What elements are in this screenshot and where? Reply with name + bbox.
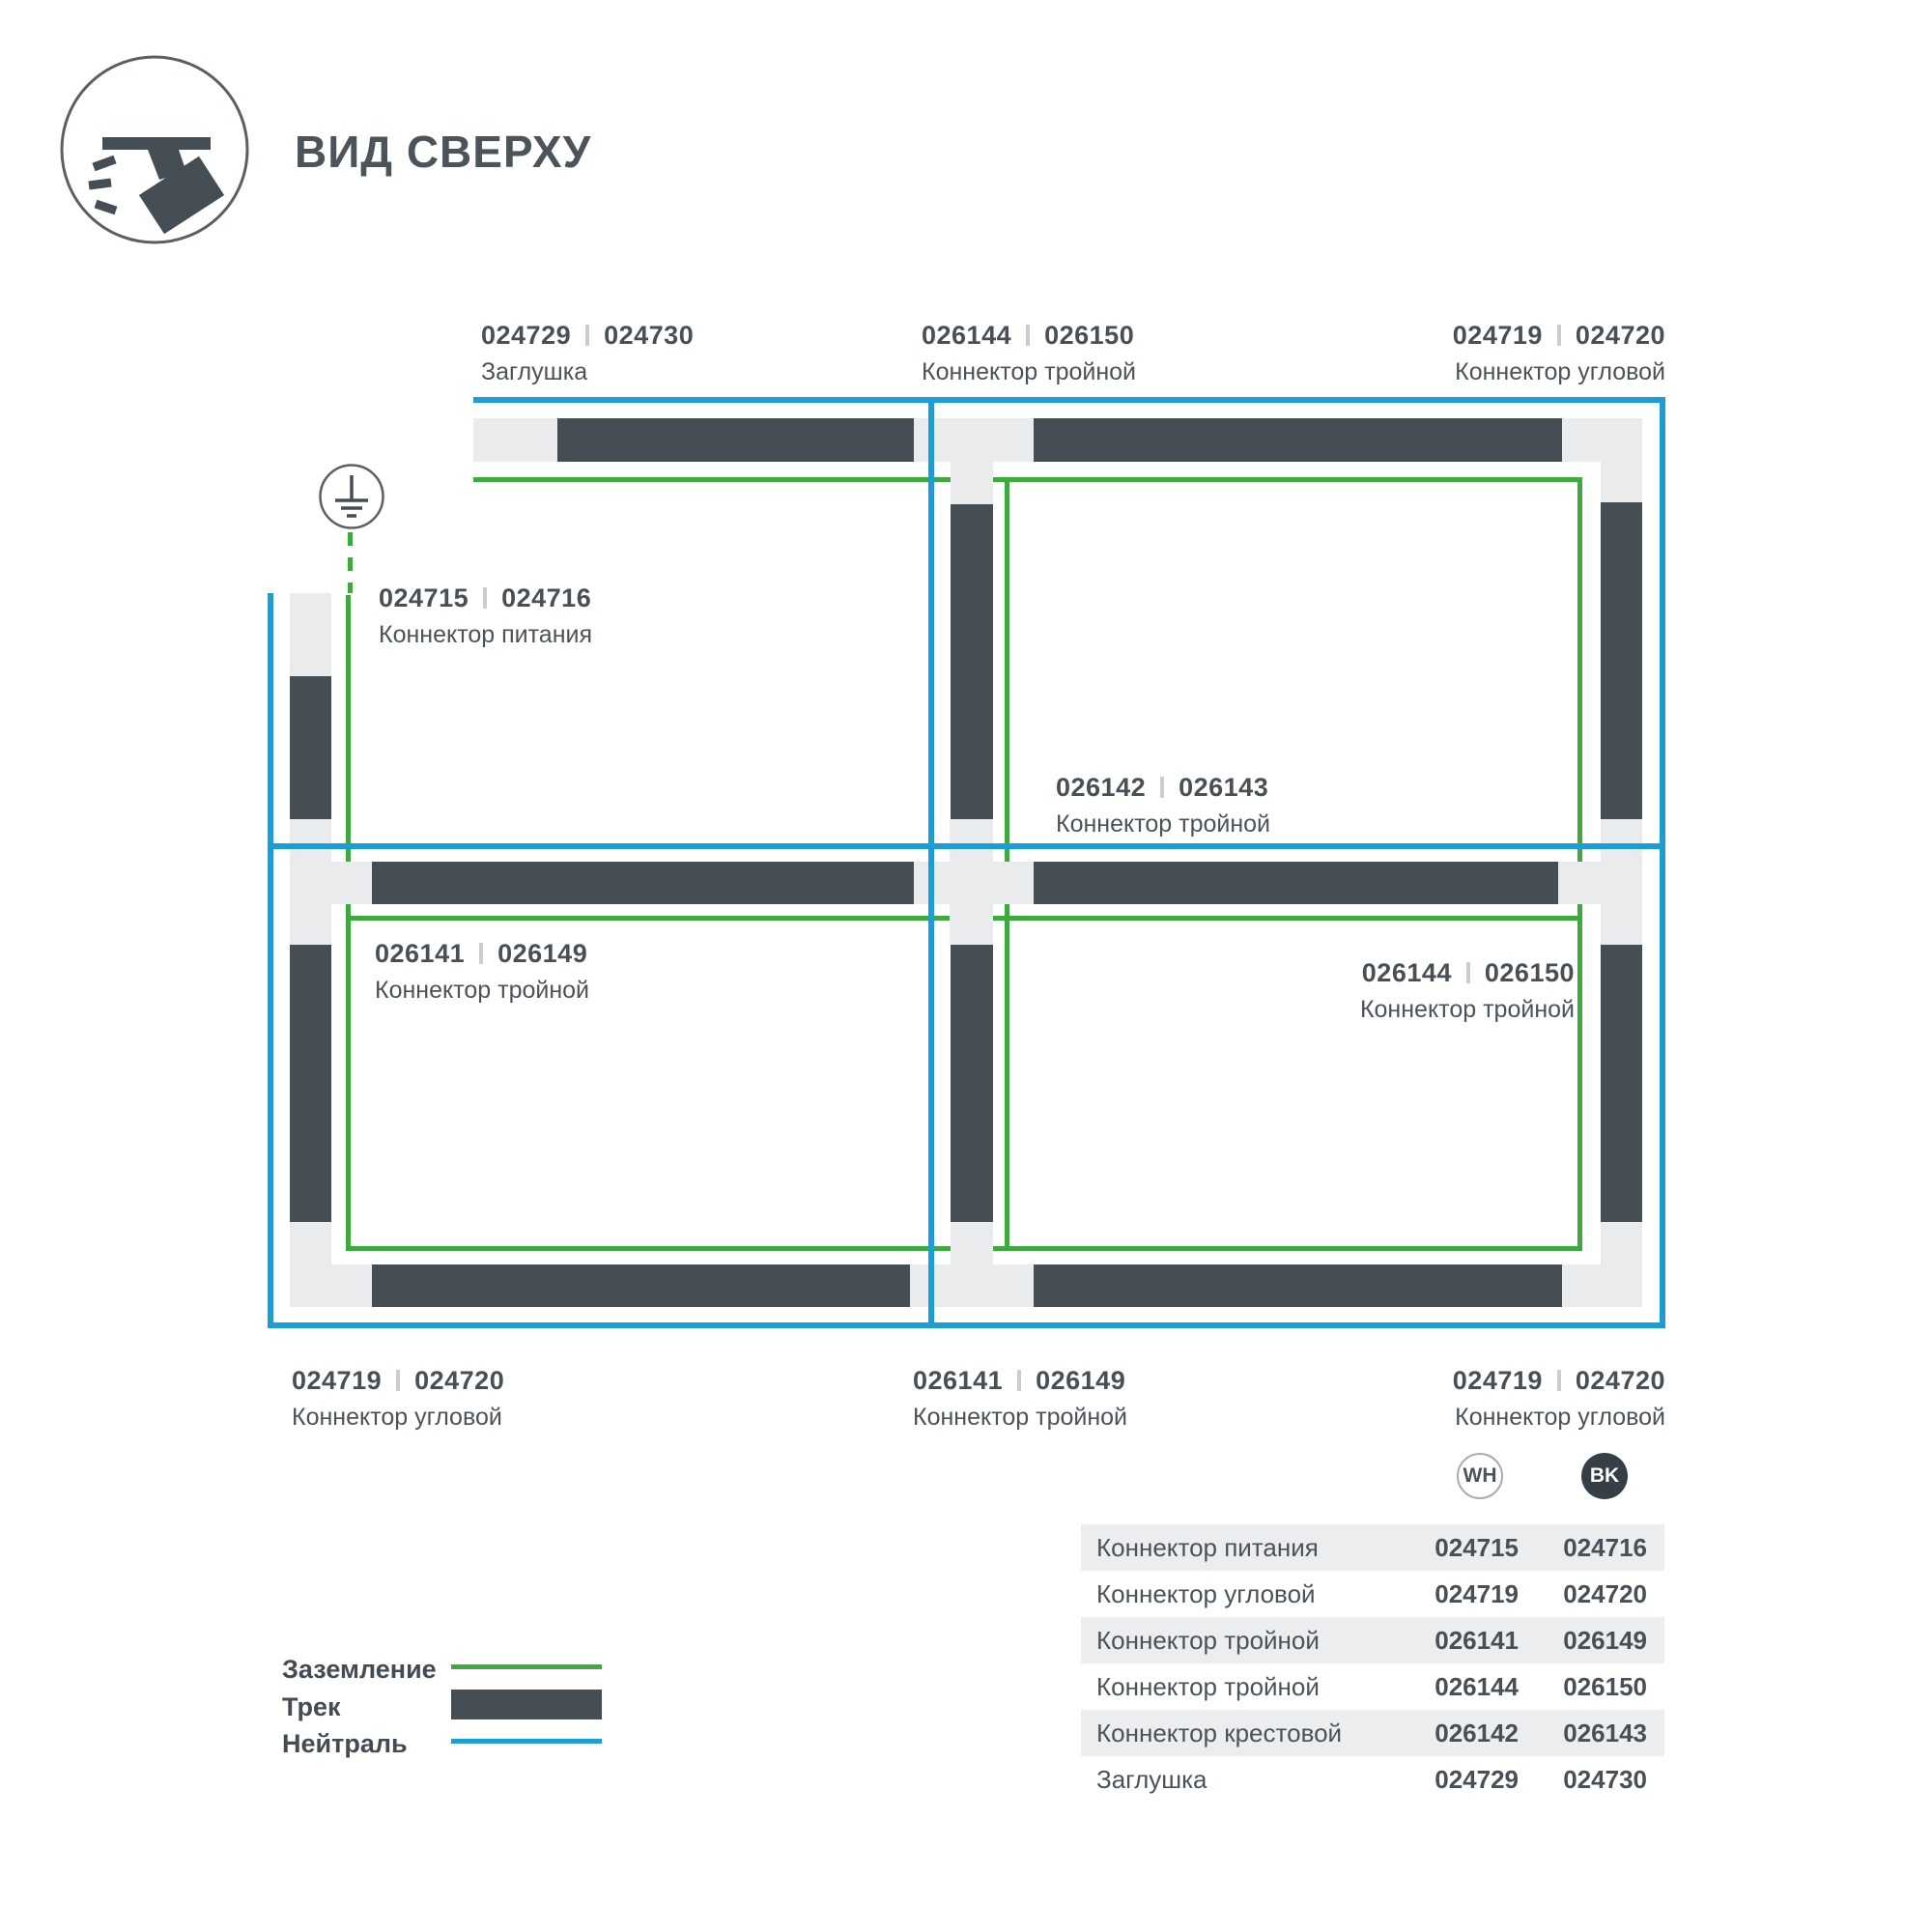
part-number-bk: 026150 — [1485, 958, 1575, 987]
part-number-bk: 024720 — [1576, 1366, 1665, 1395]
neutral-line-swatch — [451, 1739, 602, 1744]
part-numbers: 024719024720 — [1453, 321, 1665, 351]
part-number-wh: 024719 — [1453, 321, 1543, 350]
connector-segment — [1601, 462, 1642, 502]
part-label: 024719024720Коннектор угловой — [1453, 321, 1665, 386]
track-bar-swatch — [451, 1690, 602, 1719]
track-segment — [290, 676, 331, 819]
part-number-bk: 024716 — [501, 583, 591, 612]
part-number-bk: 026149 — [1036, 1366, 1125, 1395]
table-cell-name: Коннектор крестовой — [1096, 1710, 1342, 1756]
connector-segment — [1601, 819, 1642, 945]
table-row: Коннектор угловой024719024720 — [1081, 1571, 1664, 1617]
table-cell-wh: 024715 — [1435, 1524, 1519, 1571]
table-cell-bk: 026150 — [1563, 1663, 1647, 1710]
top-view-diagram-page: ВИД СВЕРХУ 024729024730Заглушка026144026… — [0, 0, 1932, 1932]
legend-label: Нейтраль — [282, 1729, 408, 1759]
part-number-bk: 024730 — [604, 321, 694, 350]
separator — [483, 587, 487, 609]
part-numbers: 026144026150 — [922, 321, 1136, 351]
neutral-wire — [473, 397, 1665, 403]
table-cell-bk: 024730 — [1563, 1756, 1647, 1803]
track-segment — [1601, 502, 1642, 819]
part-numbers: 026141026149 — [375, 939, 589, 969]
table-cell-wh: 026144 — [1435, 1663, 1519, 1710]
table-cell-bk: 026149 — [1563, 1617, 1647, 1663]
part-numbers: 026144026150 — [1360, 958, 1575, 988]
connector-segment — [951, 462, 993, 505]
neutral-wire — [268, 593, 273, 1328]
part-label: 026144026150Коннектор тройной — [1360, 958, 1575, 1024]
connector-segment — [1562, 1264, 1642, 1307]
part-number-bk: 024720 — [1576, 321, 1665, 350]
track-light-icon — [59, 54, 250, 245]
table-row: Коннектор тройной026141026149 — [1081, 1617, 1664, 1663]
part-numbers: 024715024716 — [379, 583, 592, 613]
part-numbers: 026142026143 — [1056, 773, 1270, 803]
color-badge-wh: WH — [1457, 1453, 1503, 1499]
part-name: Коннектор тройной — [375, 977, 589, 1005]
page-title: ВИД СВЕРХУ — [295, 126, 591, 178]
connector-segment — [290, 593, 331, 676]
ground-wire — [348, 532, 353, 593]
track-segment — [951, 945, 993, 1222]
part-name: Коннектор тройной — [1360, 996, 1575, 1024]
track-segment — [372, 862, 914, 904]
separator — [479, 943, 483, 964]
connector-segment — [290, 819, 331, 945]
table-cell-bk: 024716 — [1563, 1524, 1647, 1571]
table-row: Заглушка024729024730 — [1081, 1756, 1664, 1803]
neutral-wire — [1660, 397, 1665, 1328]
part-name: Коннектор тройной — [922, 358, 1136, 386]
part-label: 024719024720Коннектор угловой — [1453, 1366, 1665, 1432]
part-name: Коннектор тройной — [913, 1404, 1127, 1432]
separator — [585, 325, 589, 346]
track-segment — [1601, 945, 1642, 1222]
part-numbers: 024719024720 — [292, 1366, 504, 1396]
part-label: 024719024720Коннектор угловой — [292, 1366, 504, 1432]
part-number-bk: 026150 — [1044, 321, 1134, 350]
track-segment — [951, 504, 993, 819]
part-name: Заглушка — [481, 358, 694, 386]
track-segment — [557, 418, 914, 462]
table-cell-name: Коннектор угловой — [1096, 1571, 1316, 1617]
separator — [1160, 777, 1164, 798]
color-badge-bk: BK — [1581, 1453, 1628, 1499]
part-number-wh: 026141 — [913, 1366, 1003, 1395]
part-label: 026144026150Коннектор тройной — [922, 321, 1136, 386]
part-name: Коннектор тройной — [1056, 810, 1270, 838]
table-cell-wh: 024729 — [1435, 1756, 1519, 1803]
part-label: 026141026149Коннектор тройной — [913, 1366, 1127, 1432]
track-segment — [1034, 1264, 1562, 1307]
connector-segment — [1558, 862, 1601, 904]
track-segment — [1034, 862, 1558, 904]
part-name: Коннектор угловой — [1453, 358, 1665, 386]
part-number-bk: 024720 — [414, 1366, 504, 1395]
connector-segment — [951, 1222, 993, 1264]
part-number-bk: 026149 — [497, 939, 587, 968]
part-number-wh: 024729 — [481, 321, 571, 350]
track-segment — [290, 945, 331, 1222]
part-numbers: 024719024720 — [1453, 1366, 1665, 1396]
table-cell-wh: 024719 — [1435, 1571, 1519, 1617]
connector-segment — [331, 862, 372, 904]
part-number-bk: 026143 — [1179, 773, 1268, 802]
part-number-wh: 024719 — [1453, 1366, 1543, 1395]
table-row: Коннектор питания024715024716 — [1081, 1524, 1664, 1571]
separator — [1557, 1370, 1561, 1391]
table-cell-bk: 026143 — [1563, 1710, 1647, 1756]
part-name: Коннектор питания — [379, 621, 592, 649]
part-number-wh: 026144 — [922, 321, 1011, 350]
part-number-wh: 026141 — [375, 939, 465, 968]
track-segment — [372, 1264, 910, 1307]
separator — [1466, 962, 1470, 983]
connector-segment — [290, 1264, 372, 1307]
separator — [1026, 325, 1030, 346]
connector-segment — [1562, 418, 1642, 462]
part-label: 024715024716Коннектор питания — [379, 583, 592, 649]
part-label: 024729024730Заглушка — [481, 321, 694, 386]
table-cell-bk: 024720 — [1563, 1571, 1647, 1617]
table-cell-name: Коннектор тройной — [1096, 1663, 1320, 1710]
part-numbers: 024729024730 — [481, 321, 694, 351]
connector-segment — [473, 418, 557, 462]
table-cell-name: Коннектор тройной — [1096, 1617, 1320, 1663]
part-label: 026142026143Коннектор тройной — [1056, 773, 1270, 838]
separator — [396, 1370, 400, 1391]
legend-label: Трек — [282, 1692, 341, 1722]
part-name: Коннектор угловой — [292, 1404, 504, 1432]
part-number-wh: 026144 — [1362, 958, 1452, 987]
table-cell-wh: 026141 — [1435, 1617, 1519, 1663]
table-cell-name: Коннектор питания — [1096, 1524, 1319, 1571]
separator — [1017, 1370, 1021, 1391]
legend-label: Заземление — [282, 1655, 437, 1685]
part-name: Коннектор угловой — [1453, 1404, 1665, 1432]
part-numbers: 026141026149 — [913, 1366, 1127, 1396]
track-segment — [1034, 418, 1562, 462]
ground-line-swatch — [451, 1664, 602, 1669]
table-cell-name: Заглушка — [1096, 1756, 1207, 1803]
connector-segment — [1601, 1222, 1642, 1264]
part-number-wh: 024719 — [292, 1366, 382, 1395]
separator — [1557, 325, 1561, 346]
ground-icon — [318, 463, 385, 530]
table-cell-wh: 026142 — [1435, 1710, 1519, 1756]
part-label: 026141026149Коннектор тройной — [375, 939, 589, 1005]
part-number-wh: 024715 — [379, 583, 469, 612]
table-row: Коннектор крестовой026142026143 — [1081, 1710, 1664, 1756]
neutral-wire — [268, 1322, 1665, 1328]
ground-wire — [473, 477, 1582, 482]
part-number-wh: 026142 — [1056, 773, 1146, 802]
table-row: Коннектор тройной026144026150 — [1081, 1663, 1664, 1710]
connector-segment — [290, 1222, 331, 1264]
neutral-wire — [268, 843, 1665, 849]
ground-wire — [346, 595, 351, 1251]
neutral-wire — [928, 397, 934, 1328]
